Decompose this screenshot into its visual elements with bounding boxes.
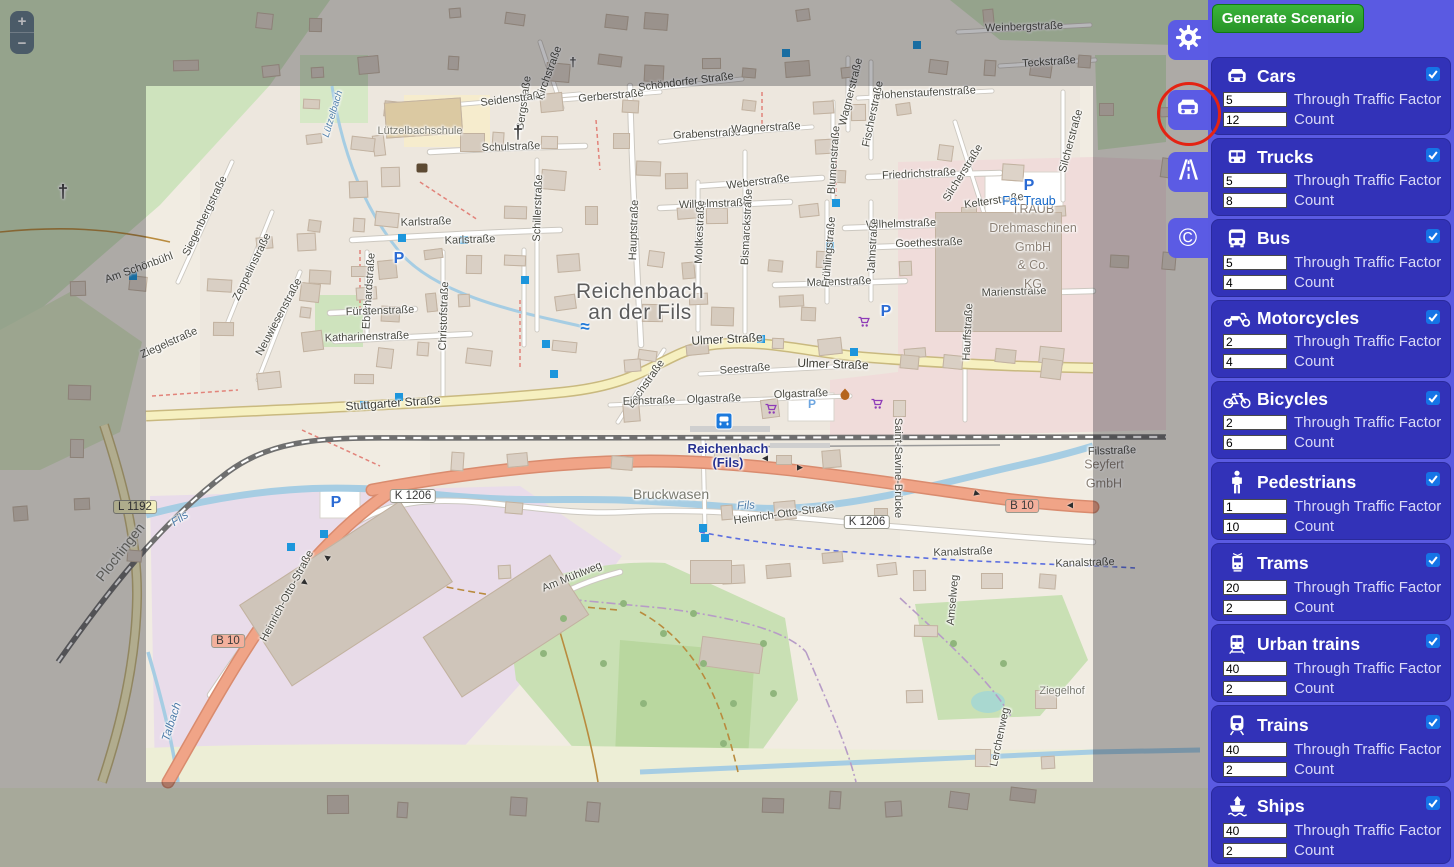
through-traffic-factor-label: Through Traffic Factor [1294, 333, 1441, 350]
count-input[interactable] [1223, 600, 1287, 615]
count-input[interactable] [1223, 681, 1287, 696]
vehicle-card: Bus Through Traffic Factor Count [1211, 219, 1451, 297]
count-label: Count [1294, 192, 1334, 209]
vehicle-card-header: Trucks [1211, 138, 1451, 168]
vehicle-checkbox[interactable] [1426, 310, 1440, 324]
count-label: Count [1294, 599, 1334, 616]
vehicle-title: Trucks [1257, 147, 1313, 168]
map-label: Olgastraße [774, 387, 829, 401]
map-label: Silcherstraße [941, 142, 986, 203]
map-label: Kelterstraße [963, 191, 1024, 211]
check-icon [1427, 311, 1439, 323]
map-label: Wilhelmstraße [679, 197, 750, 211]
map-label: Blumenstraße [826, 125, 843, 194]
map-label: Talbach [160, 701, 184, 743]
map-label: Silcherstraße [1057, 108, 1085, 174]
map-label: Kanalstraße [933, 545, 993, 559]
vehicle-card: Bicycles Through Traffic Factor Count [1211, 381, 1451, 459]
map-label: Saint-Savine-Brücke [892, 418, 904, 518]
vehicle-card-header: Trains [1211, 705, 1451, 737]
map-label: Eichstraße [623, 394, 676, 408]
through-traffic-row: Through Traffic Factor [1223, 661, 1451, 676]
vehicle-checkbox[interactable] [1426, 391, 1440, 405]
map-label: Reichenbach an der Fils [576, 281, 704, 323]
map-label: Bachstraße [625, 358, 667, 411]
through-traffic-factor-label: Through Traffic Factor [1294, 172, 1441, 189]
count-input[interactable] [1223, 519, 1287, 534]
count-row: Count [1223, 843, 1451, 858]
vehicle-card-header: Cars [1211, 57, 1451, 87]
map-label: Frühlingstraße [820, 216, 838, 288]
map-label: Friedrichstraße [882, 166, 956, 182]
count-input[interactable] [1223, 762, 1287, 777]
vehicle-card: Trains Through Traffic Factor Count [1211, 705, 1451, 783]
bicycle-icon [1221, 389, 1253, 410]
map-label: Hauffstraße [961, 303, 976, 361]
vehicle-card: Pedestrians Through Traffic Factor Count [1211, 462, 1451, 540]
count-label: Count [1294, 274, 1334, 291]
count-input[interactable] [1223, 843, 1287, 858]
map-label: † [513, 123, 523, 144]
settings-panel: Generate Scenario Cars Through Traffic F… [1208, 0, 1454, 867]
map-label: Schulstraße [481, 140, 540, 154]
check-icon [1427, 554, 1439, 566]
map-label: Reichenbach (Fils) [688, 442, 769, 470]
count-row: Count [1223, 519, 1451, 534]
map-label: Lützelbach [321, 89, 346, 138]
urban-train-icon [1221, 632, 1253, 656]
through-traffic-factor-label: Through Traffic Factor [1294, 579, 1441, 596]
vehicle-title: Ships [1257, 796, 1305, 817]
count-label: Count [1294, 111, 1334, 128]
motorcycle-icon [1221, 308, 1253, 329]
vehicle-card-header: Pedestrians [1211, 462, 1451, 494]
count-label: Count [1294, 518, 1334, 535]
map-label: Seidenstraße [480, 89, 546, 109]
count-label: Count [1294, 842, 1334, 859]
count-input[interactable] [1223, 275, 1287, 290]
ship-icon [1221, 794, 1253, 818]
count-input[interactable] [1223, 354, 1287, 369]
car-icon [1174, 95, 1202, 125]
generate-scenario-button[interactable]: Generate Scenario [1212, 4, 1364, 33]
through-traffic-factor-input[interactable] [1223, 415, 1287, 430]
check-icon [1427, 230, 1439, 242]
through-traffic-factor-label: Through Traffic Factor [1294, 91, 1441, 108]
through-traffic-factor-label: Through Traffic Factor [1294, 498, 1441, 515]
map-label: Gerberstraße [578, 87, 644, 105]
map-label: P [331, 494, 342, 512]
map-label: Siegenbergstraße [180, 174, 229, 258]
gear-icon [1175, 24, 1202, 56]
through-traffic-row: Through Traffic Factor [1223, 580, 1451, 595]
tab-settings[interactable] [1168, 20, 1208, 60]
map-label: Ulmer Straße [797, 356, 869, 372]
vehicle-checkbox[interactable] [1426, 796, 1440, 810]
through-traffic-factor-input[interactable] [1223, 823, 1287, 838]
road-shield: K 1206 [844, 515, 890, 529]
bus-icon [1221, 227, 1253, 250]
vehicle-checkbox[interactable] [1426, 148, 1440, 162]
vehicle-card: Ships Through Traffic Factor Count [1211, 786, 1451, 864]
map-label: Heinrich-Otto-Straße [733, 501, 835, 527]
through-traffic-factor-input[interactable] [1223, 334, 1287, 349]
through-traffic-row: Through Traffic Factor [1223, 255, 1451, 270]
vehicle-card-header: Trams [1211, 543, 1451, 575]
vehicle-checkbox[interactable] [1426, 67, 1440, 81]
toolbar-tabs: © [1168, 0, 1208, 867]
through-traffic-factor-label: Through Traffic Factor [1294, 254, 1441, 271]
count-row: Count [1223, 275, 1451, 290]
map-label: Karlstraße [400, 215, 451, 229]
map-label: Fils [737, 499, 756, 512]
map-label: Lützelbachschule [377, 125, 462, 137]
map-label: Heinrich-Otto-Straße [258, 548, 316, 643]
count-label: Count [1294, 680, 1334, 697]
truck-icon [1221, 146, 1253, 168]
count-label: Count [1294, 353, 1334, 370]
map-label: Moltkestraße [693, 200, 707, 264]
dim-overlay-left [0, 86, 146, 782]
through-traffic-factor-input[interactable] [1223, 742, 1287, 757]
map-label: Bruckwasen [633, 486, 709, 502]
map-label: Marienstraße [981, 285, 1046, 299]
vehicle-title: Trams [1257, 553, 1309, 574]
map-label: Hauptstraße [627, 200, 641, 261]
map-label: Hohenstaufenstraße [876, 84, 976, 101]
vehicle-checkbox[interactable] [1426, 553, 1440, 567]
map-label: Karlstraße [444, 233, 495, 247]
vehicle-checkbox[interactable] [1426, 634, 1440, 648]
count-row: Count [1223, 681, 1451, 696]
check-icon [1427, 716, 1439, 728]
map-label: Marienstraße [806, 275, 871, 289]
vehicle-list: Cars Through Traffic Factor Count Trucks [1208, 57, 1454, 864]
vehicle-card: Trams Through Traffic Factor Count [1211, 543, 1451, 621]
map-label: Neuwiesenstraße [254, 276, 305, 357]
through-traffic-factor-label: Through Traffic Factor [1294, 822, 1441, 839]
map-label: Zeppelinstraße [231, 231, 274, 302]
vehicle-title: Motorcycles [1257, 308, 1359, 329]
count-row: Count [1223, 193, 1451, 208]
count-label: Count [1294, 761, 1334, 778]
copyright-icon: © [1179, 226, 1197, 251]
map-label: TRAUB Drehmaschinen GmbH & Co. KG [989, 200, 1077, 294]
vehicle-title: Pedestrians [1257, 472, 1356, 493]
through-traffic-factor-label: Through Traffic Factor [1294, 414, 1441, 431]
map-label: Wilhelmstraße [866, 217, 937, 231]
map-label: Lerchenweg [988, 706, 1012, 767]
vehicle-title: Urban trains [1257, 634, 1360, 655]
road-shield: B 10 [1005, 499, 1039, 513]
map-label: Katharinenstraße [325, 330, 410, 345]
map-label: P [1024, 177, 1035, 195]
vehicle-card: Urban trains Through Traffic Factor Coun… [1211, 624, 1451, 702]
vehicle-card: Cars Through Traffic Factor Count [1211, 57, 1451, 135]
count-label: Count [1294, 434, 1334, 451]
count-row: Count [1223, 112, 1451, 127]
train-icon [1221, 713, 1253, 737]
through-traffic-factor-input[interactable] [1223, 173, 1287, 188]
check-icon [1427, 392, 1439, 404]
map-label: P [808, 397, 816, 411]
map-label: Ziegelstraße [139, 325, 200, 361]
through-traffic-row: Through Traffic Factor [1223, 173, 1451, 188]
through-traffic-row: Through Traffic Factor [1223, 92, 1451, 107]
check-icon [1427, 149, 1439, 161]
map-label: P [394, 250, 405, 268]
map-label: Wagnerstraße [731, 120, 801, 136]
count-row: Count [1223, 435, 1451, 450]
road-shield: B 10 [211, 634, 245, 648]
map-label: Ziegelhof [1039, 685, 1084, 697]
map-label: Goethestraße [895, 236, 963, 250]
count-row: Count [1223, 762, 1451, 777]
map-label: Fils [169, 509, 191, 529]
vehicle-checkbox[interactable] [1426, 472, 1440, 486]
car-icon [1221, 65, 1253, 87]
map-label: Amselweg [945, 574, 961, 626]
tab-copyright[interactable]: © [1168, 218, 1208, 258]
map-label: Stuttgarter Straße [345, 393, 441, 414]
vehicle-card: Trucks Through Traffic Factor Count [1211, 138, 1451, 216]
map-label: P [881, 303, 892, 321]
through-traffic-row: Through Traffic Factor [1223, 742, 1451, 757]
through-traffic-factor-input[interactable] [1223, 499, 1287, 514]
vehicle-card: Motorcycles Through Traffic Factor Count [1211, 300, 1451, 378]
count-row: Count [1223, 600, 1451, 615]
map-label: Fischerstraße [860, 80, 886, 148]
check-icon [1427, 797, 1439, 809]
through-traffic-factor-label: Through Traffic Factor [1294, 741, 1441, 758]
map-label: Seestraße [719, 361, 770, 377]
map-label: Olgastraße [687, 392, 742, 406]
through-traffic-row: Through Traffic Factor [1223, 499, 1451, 514]
through-traffic-factor-label: Through Traffic Factor [1294, 660, 1441, 677]
vehicle-card-header: Motorcycles [1211, 300, 1451, 329]
map-label: Grabenstraße [673, 126, 741, 142]
count-row: Count [1223, 354, 1451, 369]
vehicle-title: Cars [1257, 66, 1296, 87]
road-icon [1175, 156, 1202, 188]
tab-roads[interactable] [1168, 152, 1208, 192]
vehicle-card-header: Bicycles [1211, 381, 1451, 410]
map-label: Eberhardstraße [360, 252, 377, 329]
vehicle-card-header: Urban trains [1211, 624, 1451, 656]
count-input[interactable] [1223, 193, 1287, 208]
vehicle-title: Bus [1257, 228, 1290, 249]
check-icon [1427, 635, 1439, 647]
through-traffic-row: Through Traffic Factor [1223, 823, 1451, 838]
pedestrian-icon [1221, 470, 1253, 494]
through-traffic-factor-input[interactable] [1223, 580, 1287, 595]
vehicle-checkbox[interactable] [1426, 715, 1440, 729]
check-icon [1427, 68, 1439, 80]
map-label: Fürstenstraße [346, 304, 415, 318]
map-label: Christofstraße [437, 281, 451, 350]
through-traffic-factor-input[interactable] [1223, 92, 1287, 107]
map-label: Ulmer Straße [691, 330, 763, 348]
through-traffic-row: Through Traffic Factor [1223, 334, 1451, 349]
tram-icon [1221, 551, 1253, 575]
vehicle-card-header: Ships [1211, 786, 1451, 818]
map-label: Bismarckstraße [739, 189, 755, 266]
map-label: Schillerstraße [531, 174, 545, 242]
map-label: Am Mühlweg [540, 560, 603, 595]
map-label: Fa. Traub [1002, 194, 1056, 208]
count-input[interactable] [1223, 435, 1287, 450]
map-label: Jahnstraße [866, 218, 881, 274]
vehicle-title: Bicycles [1257, 389, 1328, 410]
through-traffic-factor-input[interactable] [1223, 661, 1287, 676]
tab-vehicles[interactable] [1168, 90, 1208, 130]
map-label: Weberstraße [726, 172, 790, 192]
check-icon [1427, 473, 1439, 485]
through-traffic-factor-input[interactable] [1223, 255, 1287, 270]
vehicle-title: Trains [1257, 715, 1309, 736]
through-traffic-row: Through Traffic Factor [1223, 415, 1451, 430]
count-input[interactable] [1223, 112, 1287, 127]
vehicle-checkbox[interactable] [1426, 229, 1440, 243]
road-shield: K 1206 [390, 489, 436, 503]
vehicle-card-header: Bus [1211, 219, 1451, 250]
